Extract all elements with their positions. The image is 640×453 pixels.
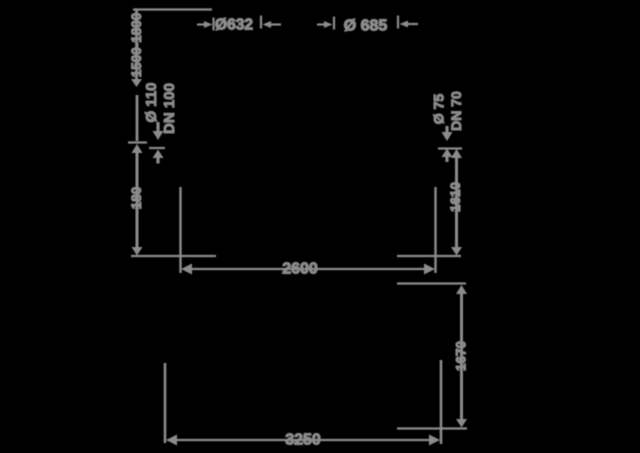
svg-text:1670: 1670 [454,341,469,371]
svg-text:DN 70: DN 70 [448,91,464,131]
svg-text:1610: 1610 [448,182,463,212]
svg-text:Ø 110: Ø 110 [143,82,160,122]
svg-text:DN 100: DN 100 [161,83,178,134]
svg-text:180: 180 [129,187,144,210]
svg-text:Ø 75: Ø 75 [431,94,447,125]
svg-text:2600: 2600 [282,261,318,278]
svg-text:Ø632: Ø632 [215,17,253,34]
svg-text:1500-1800: 1500-1800 [129,13,144,78]
svg-text:3250: 3250 [285,432,321,449]
svg-text:Ø 685: Ø 685 [344,18,388,35]
